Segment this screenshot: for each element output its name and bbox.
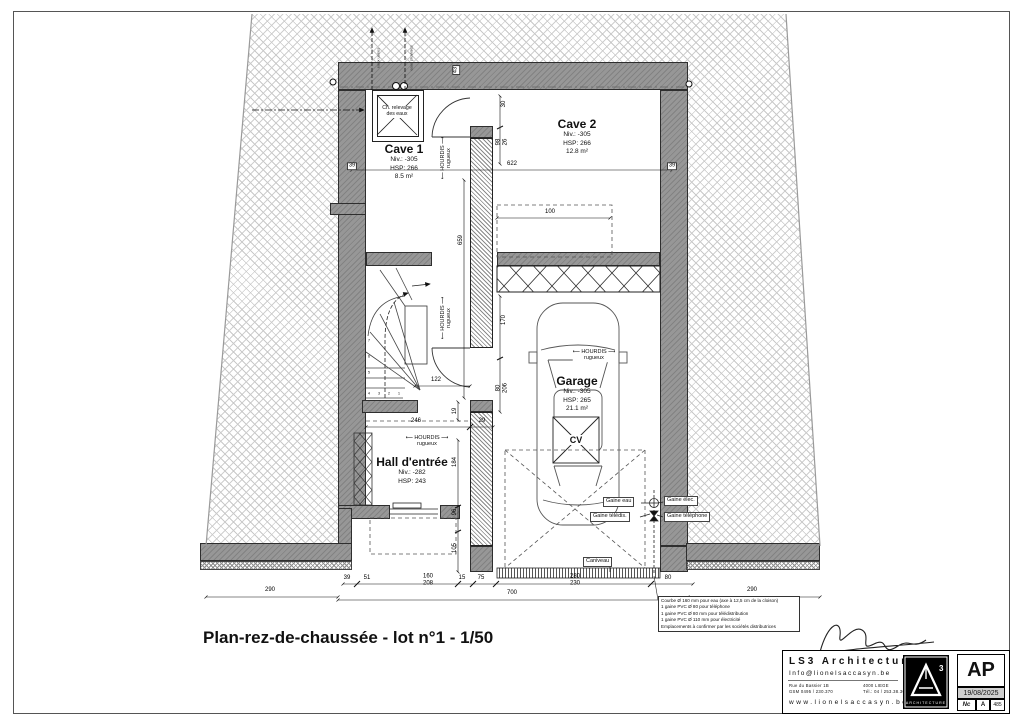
- gaine-teledis-label: Gaine télédis.: [590, 512, 630, 522]
- room-label-hall: Hall d'entrée Niv.: -282 HSP: 243: [376, 456, 448, 486]
- room-label-cave1: Cave 1 Niv.: -305 HSP: 266 8.5 m²: [385, 143, 424, 182]
- hourdis-word2: rugueux: [406, 442, 449, 448]
- firm-email: Info@lionelsaccasyn.be: [789, 670, 891, 677]
- hourdis-word2: rugueux: [447, 297, 453, 340]
- stair-number: 1: [398, 391, 400, 396]
- dim-part: 230: [570, 581, 580, 587]
- dim-label: 29: [479, 418, 486, 424]
- index-cell-1: Nc: [957, 699, 976, 711]
- dim-part: 26: [503, 139, 509, 146]
- hourdis-word2: rugueux: [447, 137, 453, 180]
- dim-part: 98: [496, 139, 502, 146]
- dim-label: 15: [459, 575, 466, 581]
- dim-label: 19: [452, 408, 458, 415]
- hourdis-note-1: HOURDIS rugueux: [441, 137, 453, 180]
- dim-label: 39: [347, 162, 357, 170]
- dim-label: 39: [667, 162, 677, 170]
- firm-address: Rue du Bassier 1B: [789, 683, 829, 688]
- wall-garage-front: [497, 252, 660, 266]
- retaining-band-left: [200, 543, 352, 561]
- dim-label: 290: [747, 587, 757, 593]
- plan-title: Plan-rez-de-chaussée - lot n°1 - 1/50: [203, 628, 493, 648]
- hourdis-word2: rugueux: [573, 356, 616, 362]
- room-name: Cave 1: [385, 143, 424, 156]
- retaining-band-right: [686, 543, 820, 561]
- dim-label: 80206: [496, 383, 509, 393]
- dim-label: 30: [501, 101, 507, 108]
- wall-garage-door-pier: [470, 546, 493, 572]
- wall-left: [338, 90, 366, 508]
- dim-part: 280: [570, 574, 580, 580]
- firm-city: 4000 LIEGE: [863, 683, 889, 688]
- room-area: 8.5 m²: [385, 173, 424, 181]
- room-niv: Niv.: -305: [558, 131, 597, 139]
- stair-number: 5: [368, 370, 370, 375]
- sump-label-line2: des eaux: [382, 112, 411, 118]
- index-2: A: [981, 702, 985, 708]
- dim-part: 206: [503, 383, 509, 393]
- wall-top: [338, 62, 688, 90]
- stair-number: 6: [368, 354, 370, 359]
- dim-label: 659: [458, 235, 464, 245]
- room-label-garage: Garage Niv.: -305 HSP: 265 21.1 m²: [556, 375, 597, 414]
- room-name: Hall d'entrée: [376, 456, 448, 469]
- retaining-strip-right: [686, 561, 820, 570]
- firm-name: LS3 Architecture: [789, 656, 917, 667]
- stair-number: 4: [368, 391, 370, 396]
- dim-label: 246: [411, 418, 421, 424]
- logo-caption: ARCHITECTURE: [906, 701, 946, 705]
- dim-label: 43: [452, 65, 460, 75]
- stamp-date: 19/08/2025: [963, 690, 998, 697]
- room-hsp: HSP: 266: [558, 140, 597, 148]
- hourdis-note-4: HOURDIS rugueux: [406, 436, 449, 448]
- room-area: 21.1 m²: [556, 405, 597, 413]
- wall-stair-hall-divider: [362, 400, 418, 413]
- note-line: Emplacements à confirmer par les société…: [661, 624, 797, 630]
- hourdis-note-2: HOURDIS rugueux: [441, 297, 453, 340]
- dim-label: 184: [452, 457, 458, 467]
- dim-label: 700: [507, 590, 517, 596]
- dim-label: 39: [344, 575, 351, 581]
- divider: [788, 680, 898, 681]
- dim-label: 9826: [496, 139, 509, 146]
- room-niv: Niv.: -282: [376, 469, 448, 477]
- dim-label: 75: [478, 575, 485, 581]
- retaining-strip-left: [200, 561, 352, 570]
- dim-label: 160208: [423, 574, 433, 587]
- dim-label: 170: [501, 315, 507, 325]
- gaine-eau-label: Gaine eau: [603, 497, 634, 507]
- title-block: LS3 Architecture Info@lionelsaccasyn.be …: [782, 650, 1010, 714]
- room-niv: Niv.: -305: [556, 388, 597, 396]
- room-hsp: HSP: 266: [385, 165, 424, 173]
- stair-number: 7: [368, 338, 370, 343]
- index-3: 485: [993, 702, 1001, 708]
- dim-part: 160: [423, 574, 433, 580]
- dim-label: 51: [364, 575, 371, 581]
- wall-garage-door-corner: [660, 546, 688, 572]
- svg-text:3: 3: [939, 664, 944, 673]
- dim-label: 622: [507, 161, 517, 167]
- sump-label: Ch. relevage des eaux: [381, 106, 412, 118]
- dim-label: 290: [265, 587, 275, 593]
- room-name: Garage: [556, 375, 597, 388]
- pipe-label-2: eaux pluviales: [409, 45, 414, 70]
- wall-right: [660, 90, 688, 546]
- room-area: 12.8 m²: [558, 148, 597, 156]
- pipe-label-1: eaux usées: [376, 48, 381, 68]
- wall-porch-side: [338, 508, 352, 546]
- room-hsp: HSP: 243: [376, 478, 448, 486]
- dim-label: 280230: [570, 574, 580, 587]
- dim-label: 122: [431, 377, 441, 383]
- wall-central-lintel-2: [470, 400, 493, 412]
- stamp-type: AP: [967, 659, 995, 682]
- logo-triangle-icon: 3 ARCHITECTURE: [903, 655, 949, 709]
- stamp-type-cell: AP: [957, 654, 1005, 687]
- hourdis-note-3: HOURDIS rugueux: [573, 350, 616, 362]
- stair-number: 3: [378, 391, 380, 396]
- stair-number: 2: [388, 391, 390, 396]
- firm-logo: 3 ARCHITECTURE: [903, 655, 949, 709]
- room-hsp: HSP: 265: [556, 397, 597, 405]
- room-label-cave2: Cave 2 Niv.: -305 HSP: 266 12.8 m²: [558, 118, 597, 157]
- drawing-sheet: Cave 1 Niv.: -305 HSP: 266 8.5 m² Cave 2…: [0, 0, 1024, 724]
- wall-left-pier: [330, 203, 366, 215]
- wall-central-upper: [470, 138, 493, 348]
- firm-gsm: GSM 0495 / 230.370: [789, 689, 833, 694]
- utility-notes: Courbe Ø 160 mm pour eau (axe à 12,5 cm …: [658, 596, 800, 632]
- index-1: Nc: [963, 702, 971, 708]
- gaine-elec-label: Gaine élec.: [664, 496, 698, 506]
- index-cell-2: A: [976, 699, 990, 711]
- dim-part: 80: [496, 385, 502, 392]
- dim-label: 96: [452, 509, 458, 516]
- dim-label: 100: [545, 209, 555, 215]
- dim-part: 208: [423, 581, 433, 587]
- wall-cave1-divider: [366, 252, 432, 266]
- gaine-telephone-label: Gaine téléphone: [664, 512, 710, 522]
- index-cell-3: 485: [990, 699, 1005, 711]
- dim-label: 105: [452, 543, 458, 553]
- stamp-date-cell: 19/08/2025: [957, 687, 1005, 699]
- wall-central-lintel-1: [470, 126, 493, 138]
- cv-label: CV: [569, 435, 584, 445]
- wall-central-lower: [470, 412, 493, 546]
- firm-website: www.lionelsaccasyn.be: [789, 699, 908, 706]
- dim-label: 80: [665, 575, 672, 581]
- caniveau-label: Caniveau: [583, 557, 612, 567]
- room-name: Cave 2: [558, 118, 597, 131]
- firm-tel: Tél.: 04 / 253.38.30: [863, 689, 905, 694]
- room-niv: Niv.: -305: [385, 156, 424, 164]
